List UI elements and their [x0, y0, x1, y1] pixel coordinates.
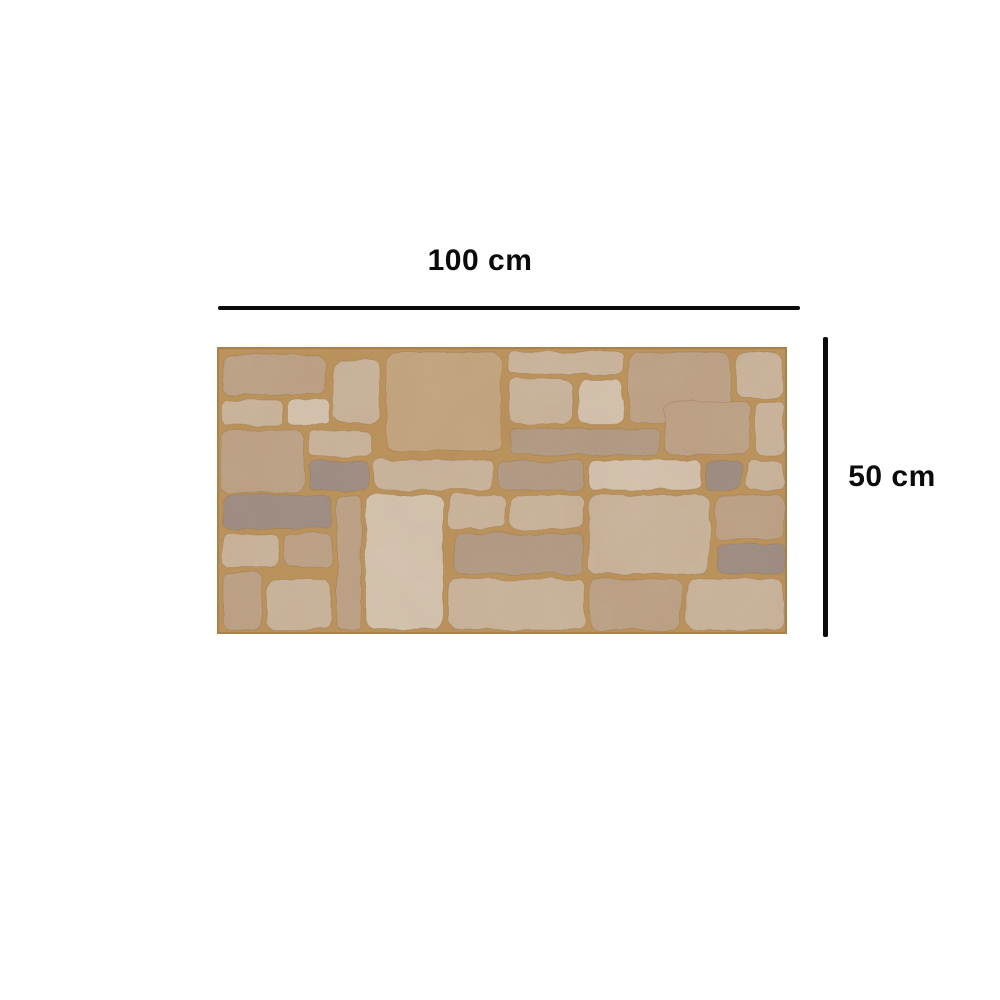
width-dimension-label: 100 cm	[380, 246, 580, 276]
height-dimension-label: 50 cm	[842, 462, 942, 492]
product-dimension-diagram: 100 cm 50 cm	[0, 0, 1000, 1000]
texture-grain-overlay	[217, 347, 787, 634]
stone-wall-panel-image	[217, 347, 787, 634]
width-dimension-line	[218, 306, 800, 310]
height-dimension-line	[823, 337, 828, 637]
stone-wall-panel-svg	[217, 347, 787, 634]
